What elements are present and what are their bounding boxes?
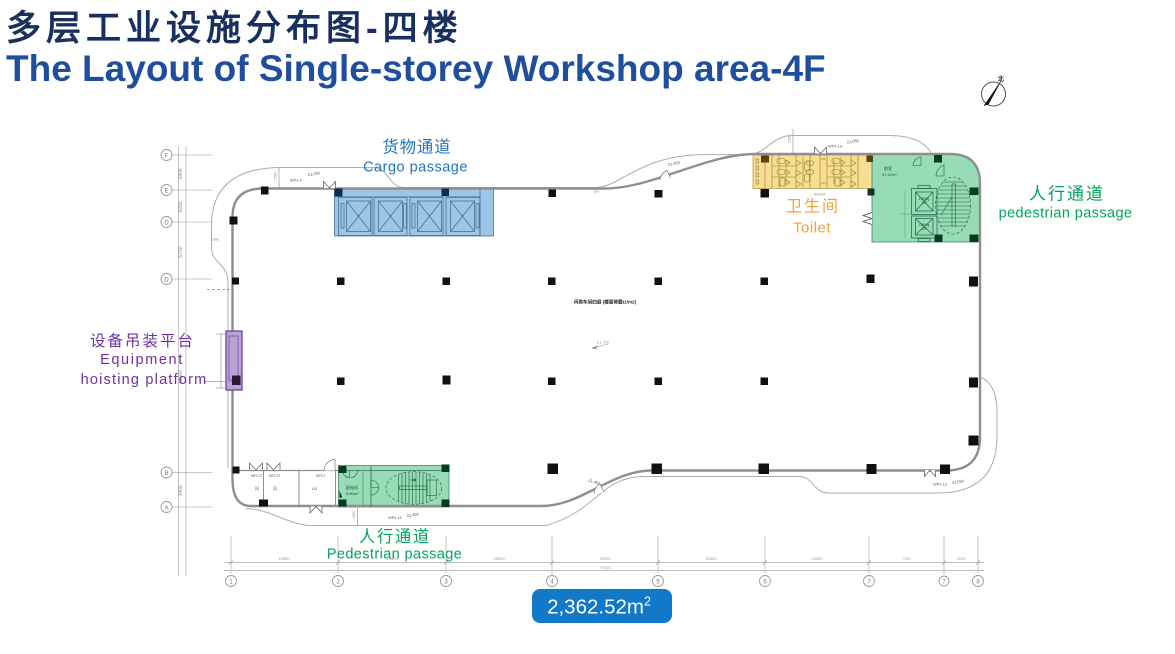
svg-text:货物通道: 货物通道 [382, 139, 451, 157]
svg-text:Pedestrian passage: Pedestrian passage [327, 547, 462, 563]
svg-text:77600: 77600 [599, 565, 611, 570]
svg-text:人行通道: 人行通道 [359, 528, 431, 546]
svg-text:21,450: 21,450 [406, 511, 420, 518]
svg-text:2,362.52m2: 2,362.52m2 [547, 595, 651, 619]
svg-text:D: D [164, 221, 169, 227]
svg-text:Toilet: Toilet [793, 220, 831, 237]
svg-text:3400: 3400 [178, 485, 184, 496]
svg-text:3: 3 [444, 580, 448, 586]
svg-text:丙类车间四层 (楼面荷载t1/m2): 丙类车间四层 (楼面荷载t1/m2) [574, 299, 637, 306]
svg-text:15000: 15000 [811, 556, 823, 561]
svg-text:E: E [164, 189, 168, 195]
svg-text:MFC27: MFC27 [269, 474, 281, 478]
svg-text:21,050: 21,050 [846, 138, 860, 145]
svg-text:1500: 1500 [352, 511, 356, 519]
svg-text:A: A [164, 506, 168, 512]
svg-text:21,050: 21,050 [951, 478, 965, 485]
svg-text:Equipment: Equipment [100, 352, 184, 368]
svg-text:pedestrian passage: pedestrian passage [999, 206, 1133, 222]
svg-text:21.700: 21.700 [597, 340, 610, 345]
svg-text:WPs 12: WPs 12 [933, 482, 948, 487]
svg-text:21,050: 21,050 [307, 170, 321, 177]
svg-text:6: 6 [763, 580, 767, 586]
svg-text:7: 7 [867, 580, 871, 586]
svg-text:风: 风 [273, 486, 277, 491]
svg-text:4: 4 [550, 580, 554, 586]
svg-text:W1024: W1024 [814, 193, 825, 197]
svg-text:配电间: 配电间 [346, 484, 358, 490]
svg-text:1500: 1500 [788, 135, 792, 143]
svg-text:37.42m²: 37.42m² [882, 172, 897, 177]
svg-text:5: 5 [656, 580, 660, 586]
svg-text:设备吊装平台: 设备吊装平台 [90, 332, 195, 350]
svg-text:风: 风 [255, 486, 259, 491]
svg-text:1: 1 [229, 580, 233, 586]
svg-text:前室: 前室 [884, 165, 892, 171]
svg-text:Cargo passage: Cargo passage [363, 160, 468, 176]
svg-text:北: 北 [998, 75, 1004, 83]
svg-text:D: D [164, 278, 169, 284]
svg-text:LB: LB [312, 486, 317, 491]
svg-text:21,450: 21,450 [588, 477, 602, 486]
svg-text:WPs 9: WPs 9 [290, 178, 303, 183]
svg-text:人行通道: 人行通道 [1029, 185, 1105, 204]
svg-text:WPs 13: WPs 13 [828, 144, 843, 149]
svg-text:B: B [164, 471, 168, 477]
svg-text:7700: 7700 [902, 556, 912, 561]
svg-text:13P: 13P [921, 227, 927, 231]
svg-text:3400: 3400 [178, 168, 184, 179]
svg-text:21,450: 21,450 [667, 160, 681, 167]
svg-text:MFC7: MFC7 [316, 474, 326, 478]
svg-text:13P: 13P [921, 201, 927, 205]
svg-text:8: 8 [976, 580, 980, 586]
svg-text:15500: 15500 [493, 556, 505, 561]
svg-text:2: 2 [336, 580, 340, 586]
svg-text:hoisting platform: hoisting platform [81, 372, 208, 388]
svg-text:卫生间: 卫生间 [786, 198, 840, 216]
svg-text:5750: 5750 [178, 246, 184, 257]
svg-text:F: F [165, 154, 169, 160]
svg-text:9.90m²: 9.90m² [346, 491, 359, 496]
svg-text:5250: 5250 [178, 201, 184, 212]
svg-text:1500: 1500 [274, 172, 278, 180]
svg-text:15500: 15500 [278, 556, 290, 561]
svg-text:3750: 3750 [957, 556, 967, 561]
svg-text:7: 7 [942, 580, 946, 586]
svg-text:MFC27: MFC27 [251, 474, 263, 478]
svg-text:15500: 15500 [705, 556, 717, 561]
svg-text:15500: 15500 [599, 556, 611, 561]
svg-text:WPs 11: WPs 11 [388, 515, 402, 520]
svg-text:(3-): (3-) [594, 190, 599, 194]
svg-text:1500: 1500 [211, 238, 219, 242]
